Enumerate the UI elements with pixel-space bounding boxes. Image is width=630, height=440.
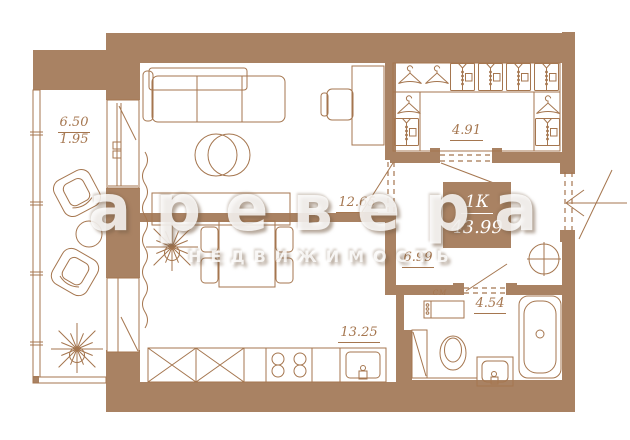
floor-plan-drawing bbox=[0, 0, 630, 440]
wardrobe-area-label: 4.91 bbox=[444, 124, 489, 141]
toilet bbox=[440, 336, 466, 370]
plant-kitchen bbox=[146, 221, 198, 271]
hallway-area-label: 6.99 bbox=[395, 251, 441, 268]
apartment-badge: 1К 43.99 bbox=[443, 182, 511, 248]
sofa bbox=[143, 68, 285, 122]
apartment-type: 1К bbox=[461, 192, 493, 214]
curtain bbox=[143, 152, 148, 328]
desk bbox=[321, 66, 384, 145]
bathtub bbox=[519, 296, 561, 378]
kitchen-area-label: 13.25 bbox=[336, 326, 382, 343]
ventilation-shaft bbox=[527, 242, 561, 276]
balcony-door bbox=[107, 100, 139, 188]
coffee-tables bbox=[195, 134, 250, 176]
armchair-1 bbox=[50, 166, 104, 220]
bathroom-area-label: 4.54 bbox=[467, 297, 513, 314]
balcony-table bbox=[76, 221, 102, 247]
entry-arrow bbox=[566, 170, 627, 239]
apartment-total-area: 43.99 bbox=[451, 217, 503, 238]
balcony-area-label: 6.50 1.95 bbox=[52, 116, 96, 148]
washing-machine-label: СМ bbox=[425, 289, 455, 297]
kitchen-counter bbox=[148, 348, 386, 382]
plant-balcony bbox=[51, 323, 103, 373]
washing-machine bbox=[424, 301, 464, 318]
dining-table bbox=[201, 221, 293, 287]
living-room-area-label: 12.65 bbox=[334, 196, 380, 213]
kitchen-window bbox=[107, 278, 139, 352]
armchair-2 bbox=[48, 245, 103, 300]
floor-plan: 6.50 1.95 12.65 4.91 6.99 13.25 4.54 СМ … bbox=[0, 0, 630, 440]
